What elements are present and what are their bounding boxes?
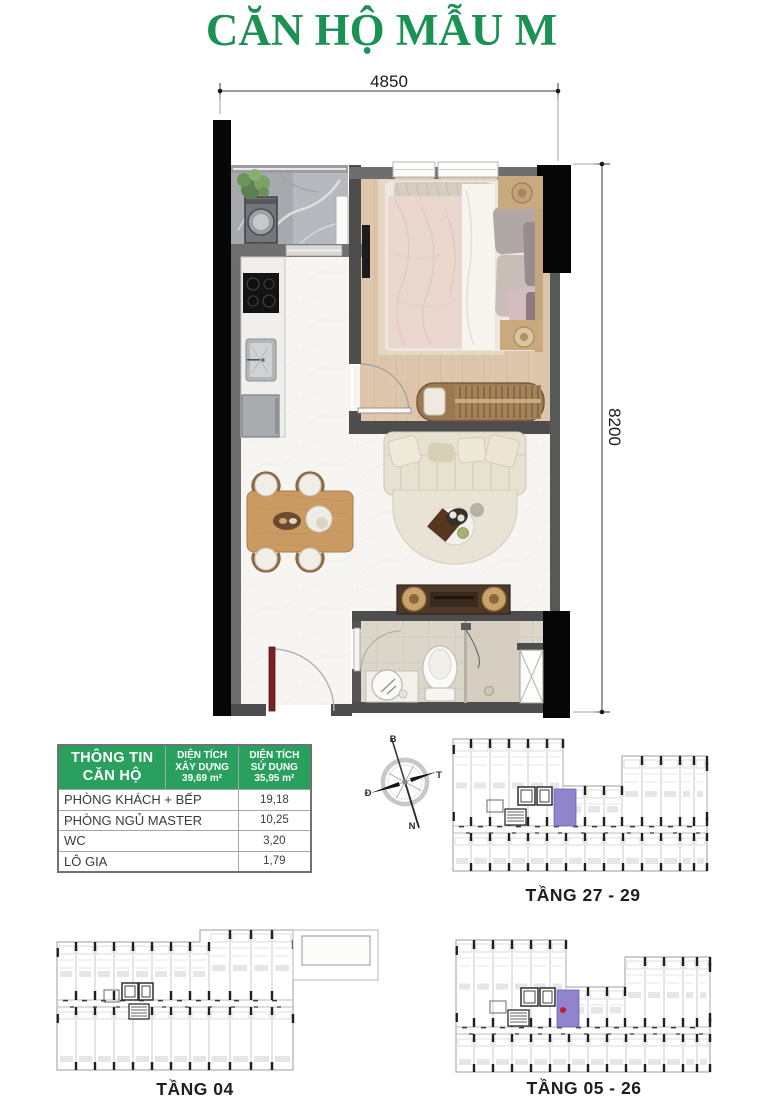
svg-text:Đ: Đ (365, 788, 372, 799)
svg-text:N: N (409, 821, 416, 832)
svg-text:B: B (390, 734, 397, 745)
svg-text:8200: 8200 (605, 408, 624, 446)
svg-text:4850: 4850 (370, 72, 408, 91)
svg-text:T: T (436, 770, 442, 781)
